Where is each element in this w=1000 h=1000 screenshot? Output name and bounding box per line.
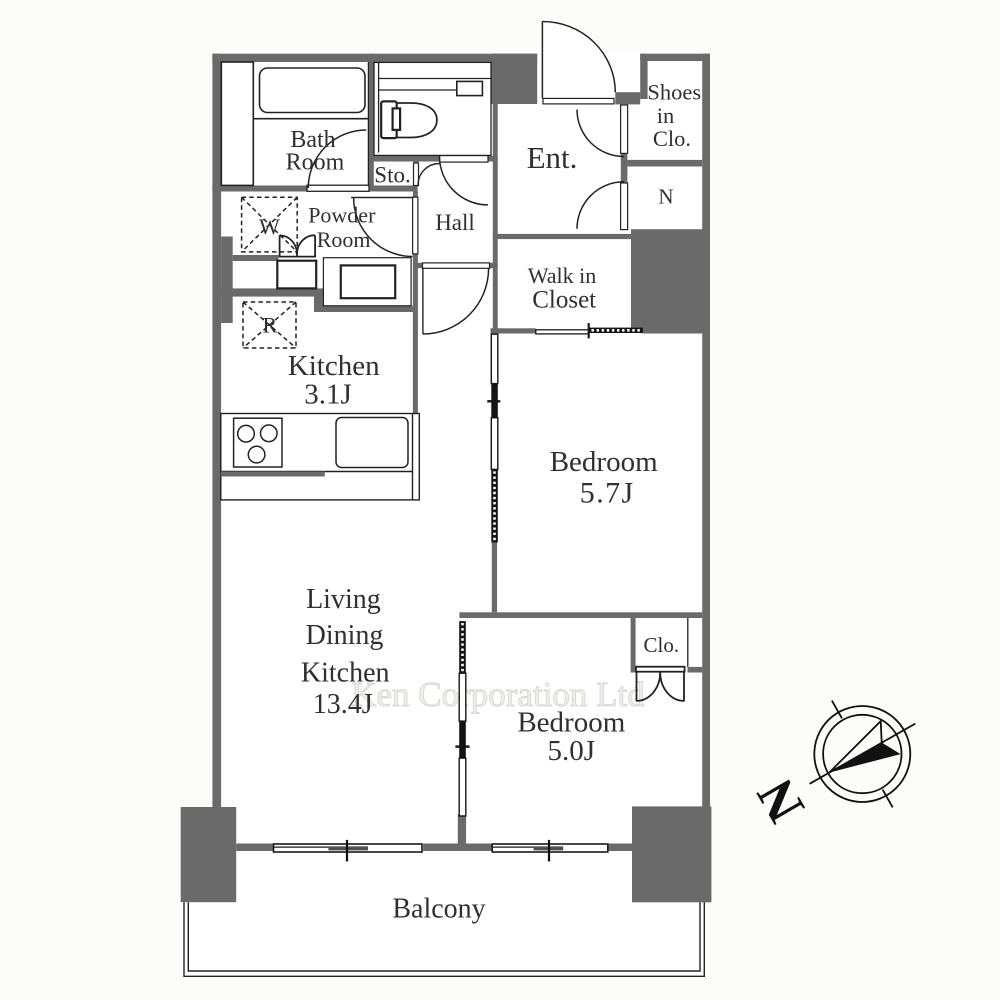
- svg-text:Kitchen: Kitchen: [288, 350, 380, 382]
- svg-text:Sto.: Sto.: [374, 162, 410, 187]
- svg-text:Bedroom: Bedroom: [550, 446, 658, 478]
- svg-text:Bedroom: Bedroom: [517, 707, 625, 739]
- svg-text:5.7J: 5.7J: [580, 477, 635, 510]
- svg-text:5.0J: 5.0J: [548, 735, 596, 767]
- svg-text:Ent.: Ent.: [527, 140, 578, 175]
- svg-text:in: in: [657, 103, 675, 128]
- svg-text:Balcony: Balcony: [392, 894, 485, 925]
- svg-text:Room: Room: [286, 150, 345, 176]
- svg-text:Clo.: Clo.: [653, 126, 691, 151]
- svg-text:3.1J: 3.1J: [304, 379, 352, 411]
- svg-text:Hall: Hall: [435, 210, 475, 235]
- svg-text:N: N: [658, 185, 673, 209]
- svg-text:Kitchen: Kitchen: [301, 658, 390, 689]
- svg-text:Living: Living: [306, 584, 381, 615]
- svg-text:W: W: [259, 214, 280, 239]
- svg-text:Dining: Dining: [306, 620, 384, 651]
- svg-text:Walk in: Walk in: [528, 263, 597, 288]
- svg-text:Clo.: Clo.: [644, 633, 680, 657]
- svg-text:Closet: Closet: [532, 287, 596, 314]
- svg-text:R: R: [262, 313, 277, 338]
- svg-text:Shoes: Shoes: [647, 79, 701, 104]
- svg-text:Powder: Powder: [308, 203, 376, 228]
- svg-text:Room: Room: [317, 227, 371, 252]
- svg-text:13.4J: 13.4J: [313, 689, 373, 720]
